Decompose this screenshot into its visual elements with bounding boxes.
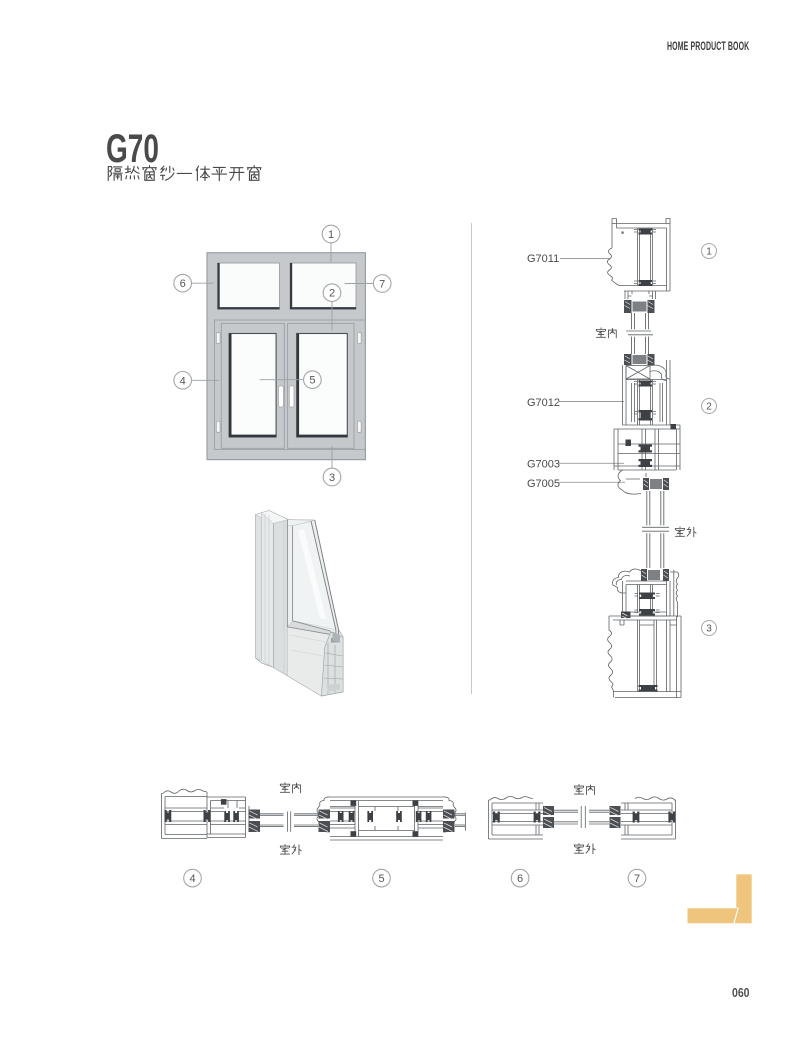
svg-text:6: 6 bbox=[517, 873, 523, 885]
svg-text:G7011: G7011 bbox=[527, 253, 559, 265]
svg-text:G7012: G7012 bbox=[527, 397, 560, 409]
svg-text:7: 7 bbox=[634, 873, 640, 885]
svg-text:7: 7 bbox=[379, 279, 385, 291]
svg-text:4: 4 bbox=[189, 873, 195, 885]
svg-text:2: 2 bbox=[329, 288, 335, 300]
svg-text:5: 5 bbox=[309, 375, 315, 387]
svg-text:1: 1 bbox=[706, 247, 712, 258]
svg-text:G7005: G7005 bbox=[527, 478, 560, 490]
svg-text:5: 5 bbox=[378, 873, 384, 885]
svg-text:3: 3 bbox=[329, 472, 335, 484]
svg-text:4: 4 bbox=[180, 375, 186, 387]
svg-text:1: 1 bbox=[328, 229, 334, 241]
svg-text:6: 6 bbox=[180, 278, 186, 290]
svg-text:3: 3 bbox=[706, 624, 712, 635]
svg-text:2: 2 bbox=[706, 402, 712, 413]
svg-text:G7003: G7003 bbox=[527, 459, 560, 471]
